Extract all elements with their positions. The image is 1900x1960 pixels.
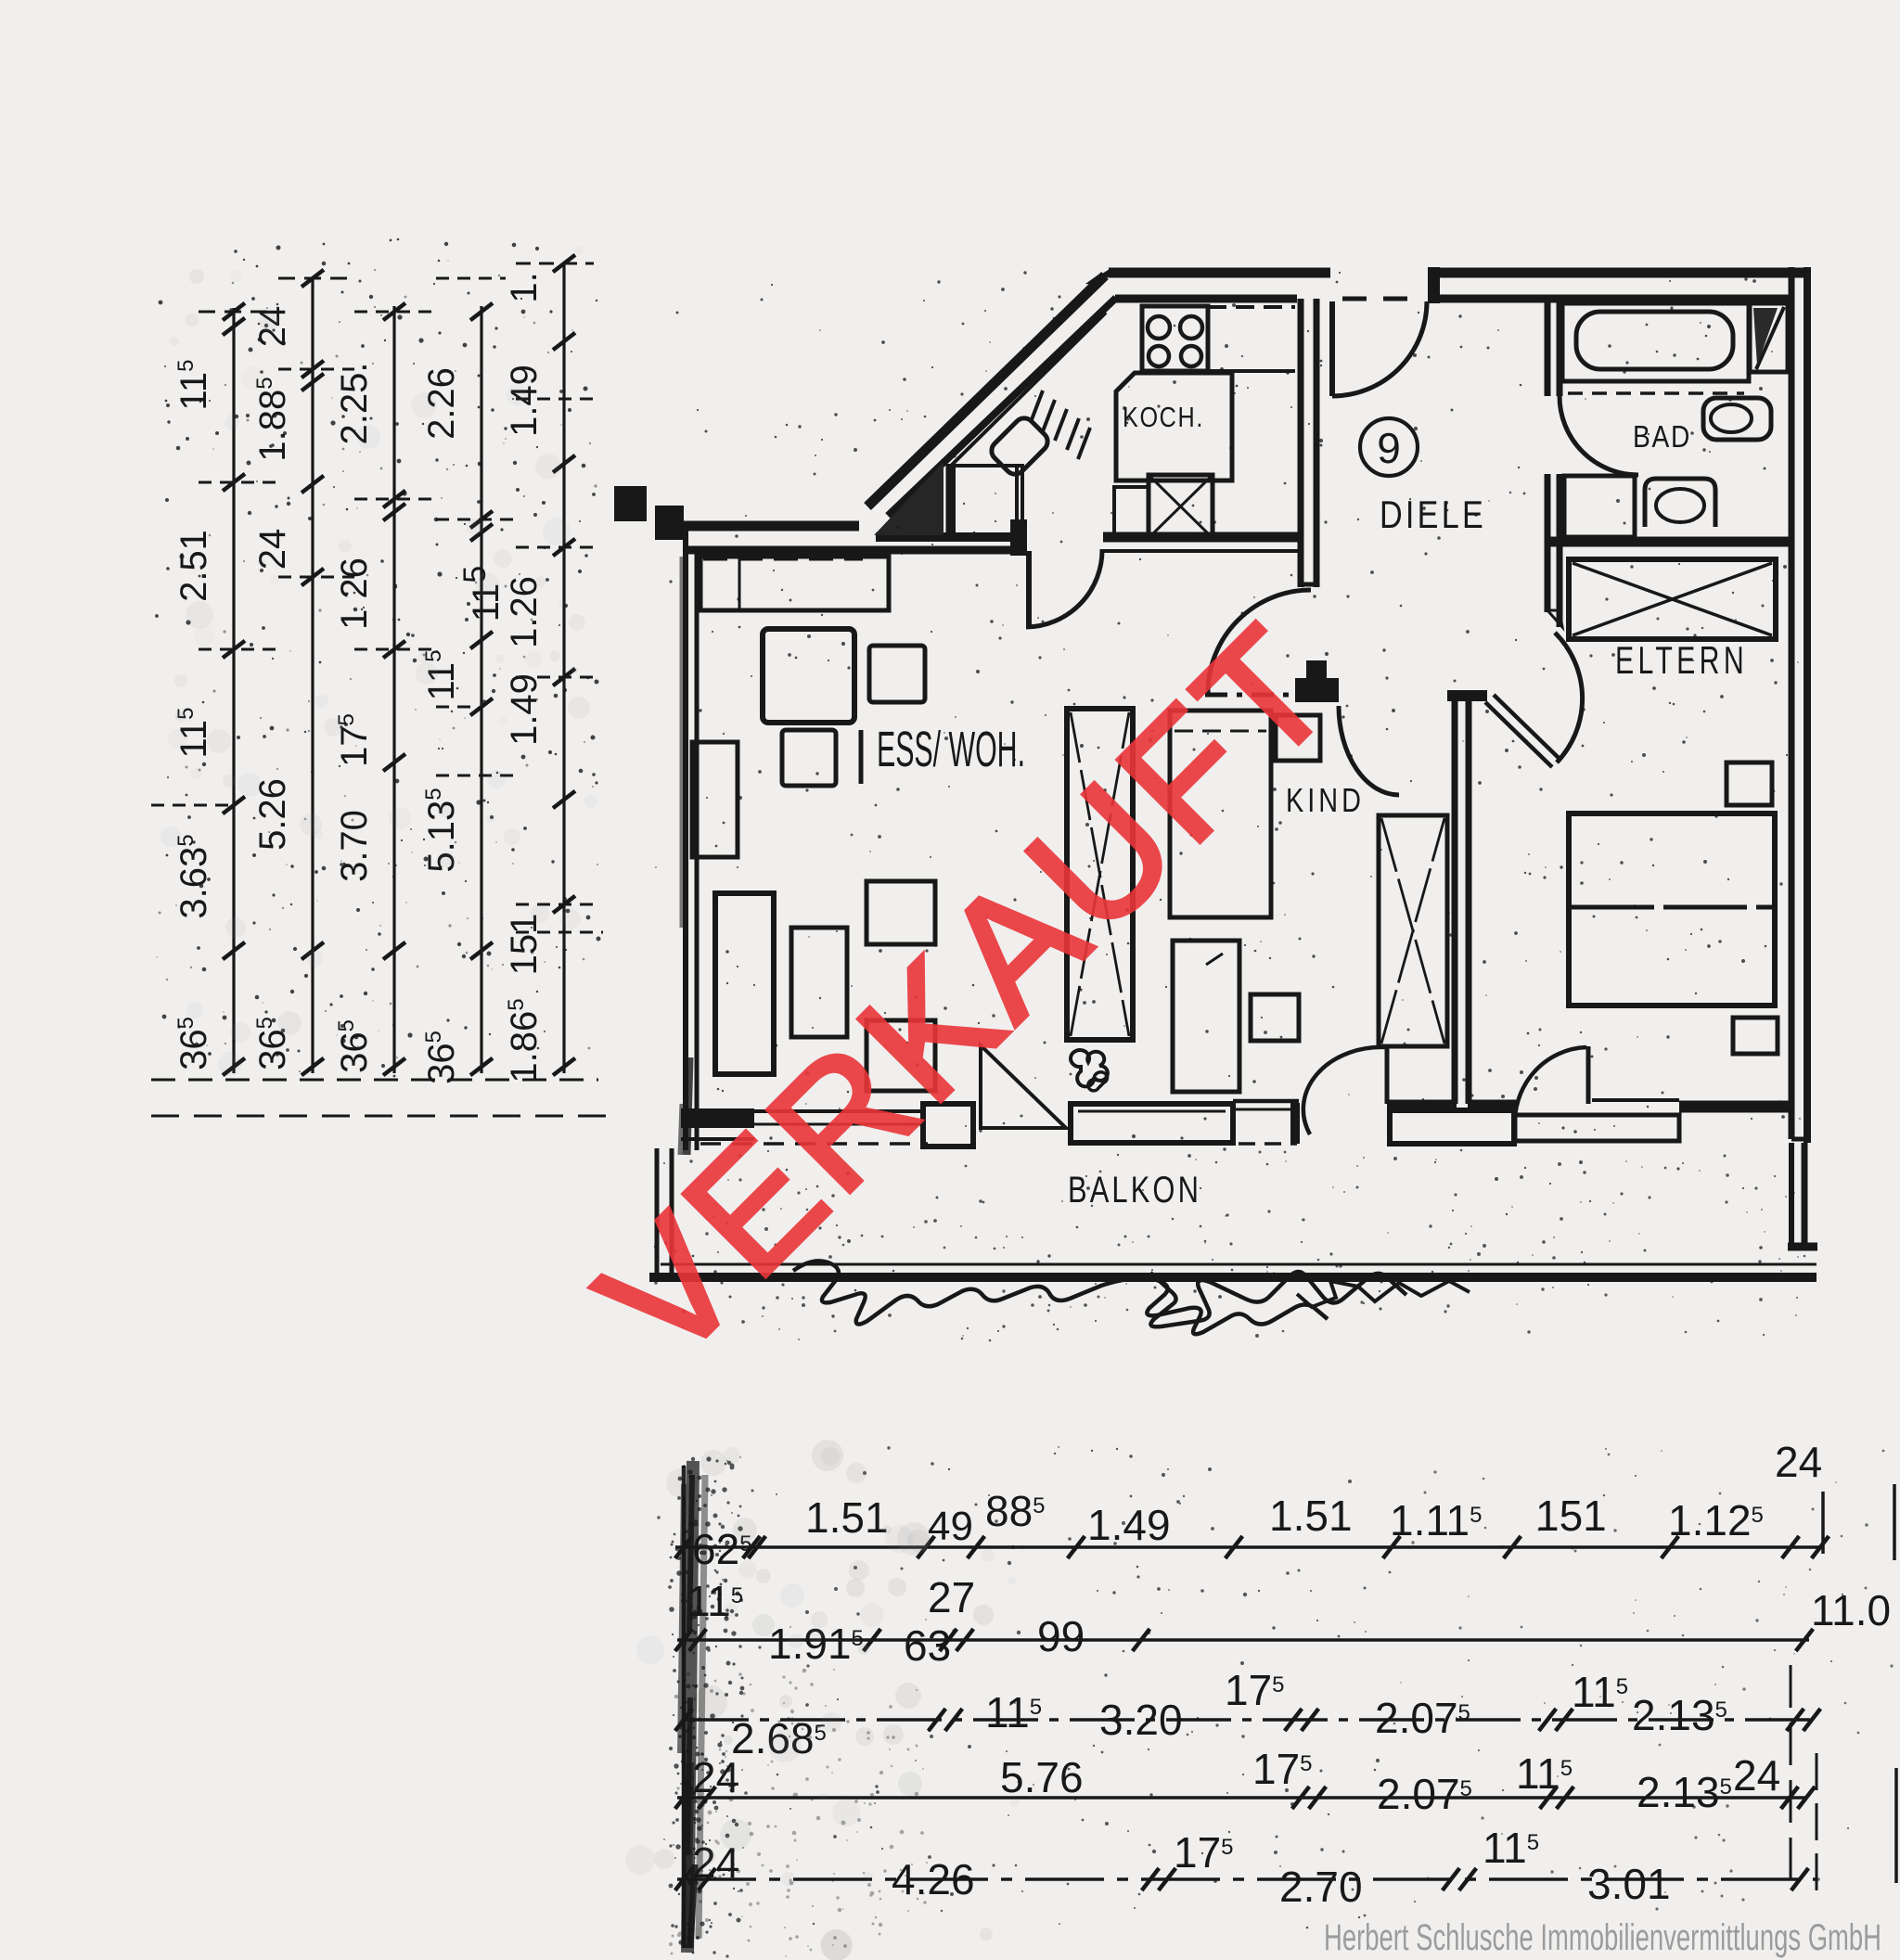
svg-text:63: 63 [904, 1621, 951, 1670]
svg-text:KOCH.: KOCH. [1123, 401, 1204, 433]
svg-text:2.135: 2.135 [1637, 1768, 1732, 1816]
svg-text:1.51: 1.51 [805, 1493, 889, 1542]
svg-text:1.115: 1.115 [1390, 1496, 1482, 1544]
svg-text:24: 24 [1775, 1438, 1822, 1486]
svg-text:1.49: 1.49 [504, 673, 545, 746]
svg-text:2.075: 2.075 [1377, 1770, 1472, 1818]
svg-text:1.125: 1.125 [1668, 1496, 1764, 1544]
svg-text:1.865: 1.865 [504, 998, 545, 1082]
svg-text:27: 27 [928, 1573, 975, 1621]
svg-text:49: 49 [928, 1504, 973, 1549]
svg-text:3.70: 3.70 [334, 810, 375, 882]
svg-text:151: 151 [1535, 1492, 1607, 1540]
svg-text:Herbert Schlusche Immobilienve: Herbert Schlusche Immobilienvermittlungs… [1324, 1917, 1881, 1958]
svg-text:4.26: 4.26 [892, 1855, 975, 1903]
svg-text:BALKON: BALKON [1068, 1170, 1201, 1211]
svg-text:ESS/ WOH.: ESS/ WOH. [877, 722, 1025, 777]
svg-text:1.49: 1.49 [1087, 1501, 1171, 1549]
svg-text:9: 9 [1377, 424, 1401, 472]
svg-text:99: 99 [1037, 1612, 1085, 1660]
svg-text:3.20: 3.20 [1099, 1696, 1183, 1744]
svg-text:2.70: 2.70 [1279, 1863, 1363, 1911]
svg-text:24: 24 [1733, 1751, 1780, 1800]
svg-text:2.51: 2.51 [173, 530, 214, 602]
svg-text:1.885: 1.885 [252, 377, 293, 461]
svg-text:ELTERN: ELTERN [1615, 638, 1748, 682]
svg-text:11.0: 11.0 [1811, 1586, 1891, 1634]
svg-text:2.135: 2.135 [1632, 1691, 1727, 1739]
svg-text:3.01: 3.01 [1587, 1860, 1671, 1908]
svg-text:1.26: 1.26 [504, 576, 545, 648]
svg-text:1.: 1. [504, 272, 545, 302]
svg-text:DIELE: DIELE [1380, 493, 1486, 536]
svg-text:BAD: BAD [1633, 419, 1691, 454]
svg-text:5.76: 5.76 [1000, 1753, 1084, 1801]
svg-text:1.51: 1.51 [1269, 1492, 1353, 1540]
svg-text:3.635: 3.635 [173, 834, 214, 918]
